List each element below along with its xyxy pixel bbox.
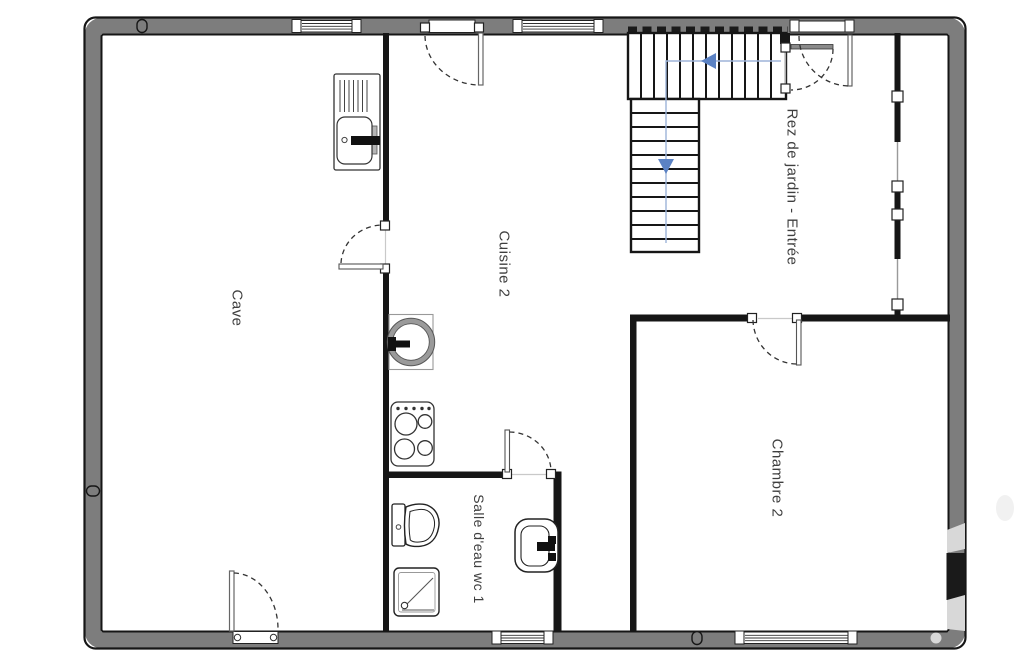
watermark-artifacts	[931, 495, 1015, 644]
wall-joint-left	[87, 486, 100, 496]
floor-plan-drawing	[0, 0, 1025, 650]
wall-joint-bottom	[692, 632, 702, 645]
wall-cave-cuisine-upper	[383, 33, 389, 225]
wall-joint-top	[137, 20, 147, 33]
salle-eau-door	[503, 430, 556, 479]
wall-chambre-top-left	[630, 315, 752, 322]
exterior-door-bottom-left	[230, 571, 279, 644]
window-top-left	[292, 20, 361, 33]
toilet-icon	[392, 504, 439, 546]
washbasin-icon	[515, 519, 558, 572]
cave-cuisine-door	[339, 221, 390, 273]
chambre-door	[748, 314, 802, 366]
entrance-double-door	[780, 33, 852, 93]
glazed-partition	[892, 33, 903, 316]
room-label-cuisine: Cuisine 2	[496, 230, 513, 297]
room-label-entree: Rez de jardin - Entrée	[784, 109, 801, 266]
shower-icon	[394, 568, 439, 616]
stove-icon	[391, 402, 434, 466]
room-label-chambre: Chambre 2	[769, 439, 786, 518]
window-top-middle	[513, 20, 603, 33]
room-label-salle-eau: Salle d'eau wc 1	[471, 494, 487, 604]
round-sink-icon	[387, 315, 434, 370]
kitchen-sink-drainer-icon	[334, 74, 380, 170]
exterior-door-top	[421, 20, 484, 85]
wall-chambre-top-right	[797, 315, 950, 322]
room-label-cave: Cave	[229, 289, 246, 326]
fixtures	[334, 74, 558, 616]
window-entrance	[790, 20, 854, 32]
staircase	[628, 30, 788, 252]
window-bottom-right	[735, 631, 857, 644]
floor-plan: Cave Cuisine 2 Rez de jardin - Entrée Ch…	[0, 0, 1025, 650]
wall-cave-cuisine-lower	[383, 270, 389, 631]
wall-salle-eau-top	[383, 472, 506, 479]
wall-chambre-left	[630, 315, 637, 632]
window-bottom-middle	[492, 631, 553, 644]
